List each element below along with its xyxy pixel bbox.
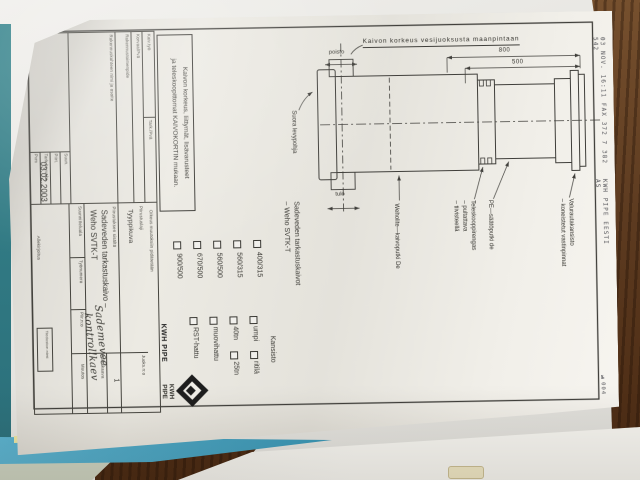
title-block: Kaiv.työ Tark./Pvä Korvaa/Pvä Rakennusto… — [27, 31, 161, 415]
file-name-box: Tiedoston nimi — [37, 328, 54, 372]
field-tyonumero: Työnumero — [78, 260, 83, 283]
brand-text: KWH PIPE — [160, 324, 168, 363]
selector-subheader: – Weho SVTK-T — [282, 201, 290, 252]
callout-cast-iron-cover: Valurautakansisto – koneistetut vastinpi… — [555, 198, 576, 308]
value-sisalto-1: Sadeveden tarkastuskaivo – — [100, 210, 111, 308]
field-suun: Suun. — [64, 153, 69, 165]
inlet-label: tulo — [335, 191, 344, 197]
field-sisalto: Piirustuksen sisältö — [111, 206, 117, 247]
field-juokseva: Juoks.n:o — [141, 355, 146, 375]
dim-500-label: 500 — [512, 59, 524, 65]
callout-adjust-pipe: PE—säätöputki de — [486, 200, 494, 274]
drawing-date: 03.02.2003 — [39, 162, 49, 202]
checkbox-icon — [230, 351, 238, 359]
value-sisalto-2: Weho SVTK-T — [89, 210, 99, 260]
size-option: 900/500 — [175, 253, 182, 278]
field-korvaa-pva: Korvaa/Pvä — [135, 34, 140, 58]
field-toimenpide: Rakennustoimenpide — [124, 34, 130, 78]
cover-option: umpi — [252, 326, 259, 341]
cover-option: ritilä — [252, 361, 259, 374]
cover-option: muovihattu — [212, 327, 220, 361]
size-selector-block: Sadeveden tarkastuskaivot – Weho SVTK-T … — [169, 195, 303, 402]
folder-edge-left — [0, 24, 11, 454]
checkbox-icon — [173, 241, 181, 249]
checkbox-icon — [233, 240, 241, 248]
checkbox-icon — [250, 351, 258, 359]
sticker — [448, 466, 484, 479]
callout-telescope-ring: Teleskooppirengas – pultattava – tiivist… — [449, 200, 478, 290]
checkbox-icon — [249, 316, 257, 324]
dim-800-label: 800 — [499, 48, 511, 54]
drawing-sheet: 03 NOV. 16:11 FAX 372 7 382 542 KWH PIPE… — [6, 11, 620, 458]
field-allekirjoitus: Allekirjoitus — [36, 236, 41, 260]
checkbox-icon — [229, 316, 237, 324]
checkbox-icon — [213, 241, 221, 249]
field-tark-pva: Tark./Pvä — [148, 120, 153, 140]
kwh-logo-wordmark: KWH PIPE — [160, 367, 174, 415]
cover-option: RST-hattu — [192, 327, 200, 359]
size-option: 670/500 — [195, 253, 202, 278]
leader-lines — [298, 41, 576, 202]
value-juokseva: 1 — [112, 378, 119, 382]
rights-note: Oikeus muutoksiin pidätetään — [149, 210, 155, 272]
cover-option: 25tn — [232, 361, 239, 375]
value-piirustuslaji: Tyyppikuva — [127, 209, 135, 243]
photo-scene: 03 NOV. 16:11 FAX 372 7 382 542 KWH PIPE… — [0, 0, 640, 480]
field-suunnitteluala: Suunnitteluala — [77, 206, 83, 236]
checkbox-icon — [209, 317, 217, 325]
checkbox-icon — [253, 240, 261, 248]
size-option: 400/315 — [255, 252, 262, 277]
base-plate-label: Suora levypohja — [290, 110, 297, 176]
well-centerlines — [319, 39, 602, 214]
size-option: 560/500 — [215, 253, 222, 278]
field-piirustuslaji: Piirustuslaji — [138, 206, 143, 230]
selector-header: Sadeveden tarkastuskaivot — [292, 201, 300, 285]
size-option: 560/315 — [235, 252, 242, 277]
field-muutos: Muutos — [80, 364, 85, 379]
checkbox-icon — [193, 241, 201, 249]
field-piirt: Piirt. — [54, 153, 59, 163]
dimension-lines — [325, 55, 583, 208]
checkbox-icon — [189, 317, 197, 325]
note-box: Kaivon korkeus, liittymät, lisävarusteet… — [156, 34, 195, 212]
outlet-label: poisto — [329, 49, 345, 55]
cover-header: Kansisto — [269, 336, 276, 363]
cover-option: 40tn — [232, 326, 239, 340]
field-kaivtyo: Kaiv.työ — [146, 34, 151, 51]
